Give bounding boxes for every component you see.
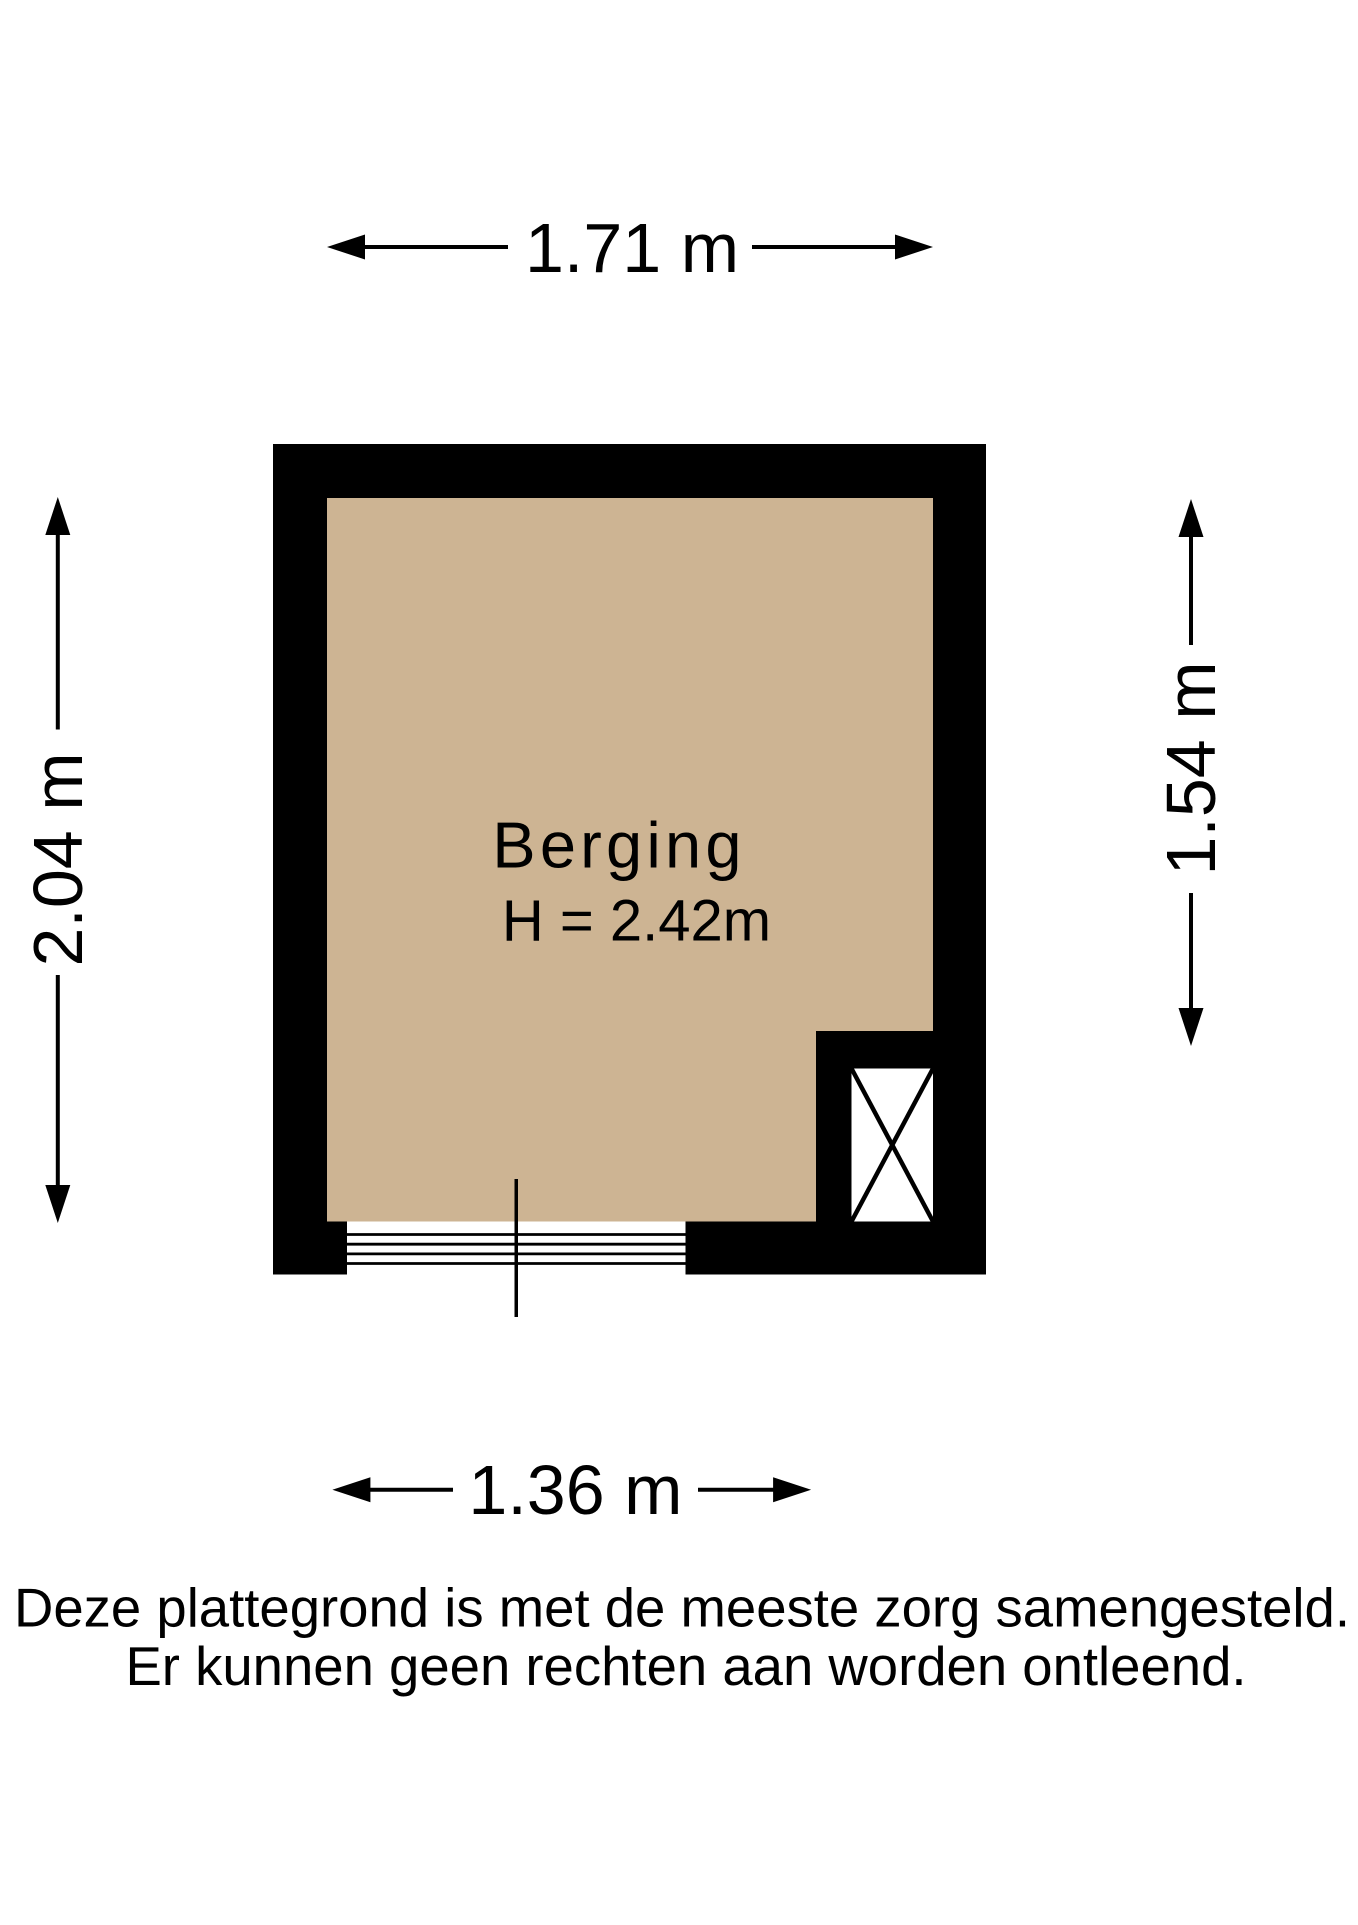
svg-text:Deze plattegrond is met de mee: Deze plattegrond is met de meeste zorg s…: [14, 1578, 1350, 1639]
svg-text:Er kunnen geen rechten aan wor: Er kunnen geen rechten aan worden ontlee…: [125, 1636, 1246, 1697]
svg-text:1.71 m: 1.71 m: [525, 209, 739, 287]
svg-text:2.04 m: 2.04 m: [19, 753, 97, 967]
svg-text:H = 2.42m: H = 2.42m: [502, 889, 771, 954]
svg-text:Berging: Berging: [492, 808, 745, 881]
svg-text:1.54 m: 1.54 m: [1152, 662, 1230, 876]
svg-text:1.36 m: 1.36 m: [468, 1451, 682, 1529]
